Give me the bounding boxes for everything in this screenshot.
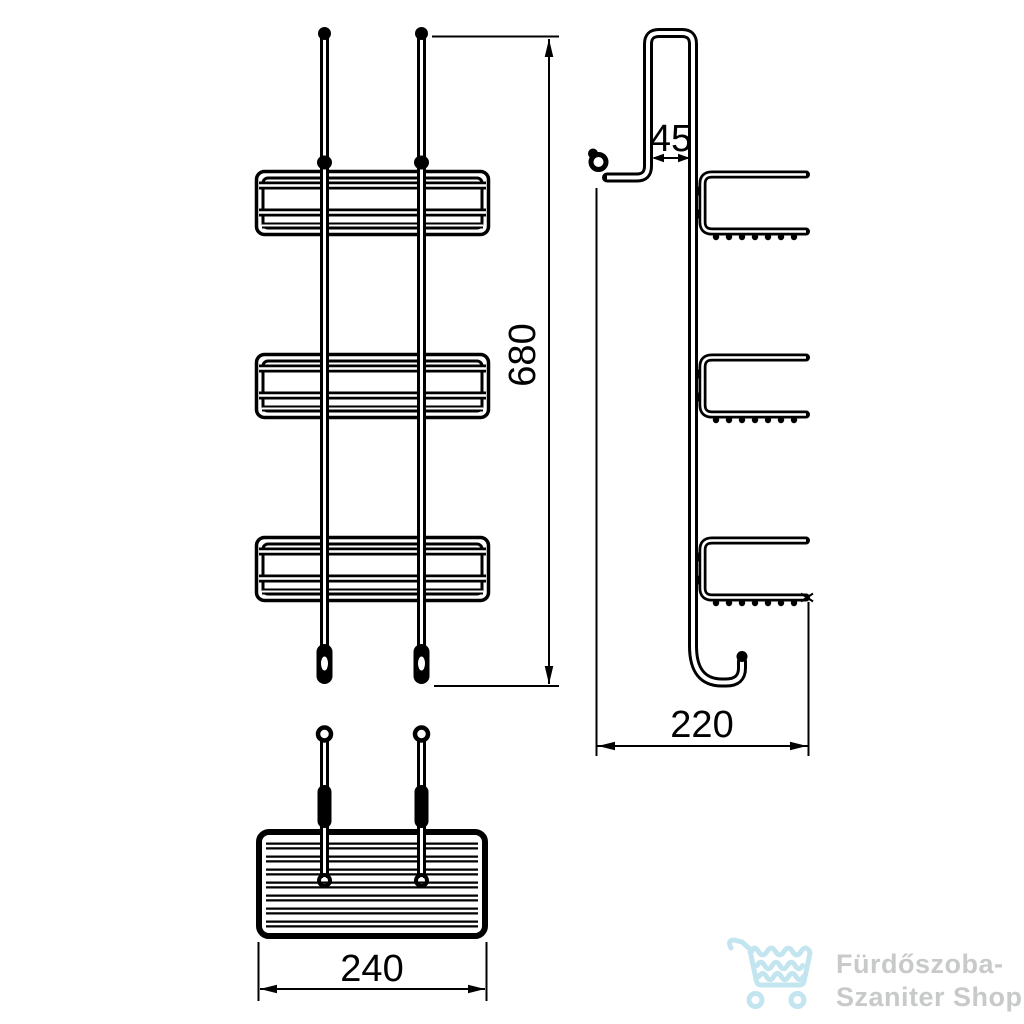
dimension-depth: 220	[597, 188, 814, 756]
rail-end-ball	[319, 875, 330, 886]
dimension-label-width: 240	[340, 948, 403, 990]
side-basket-3	[690, 541, 806, 607]
dimension-label-hook-gap: 45	[650, 118, 692, 160]
shower-caddy-dimension-drawing: 680 45 220	[0, 0, 1024, 1024]
rail-connector-ball	[317, 156, 332, 170]
top-basket	[259, 832, 485, 936]
front-basket-3	[257, 538, 489, 601]
front-view: 680	[257, 27, 560, 686]
cart-icon	[730, 940, 810, 1007]
dimension-label-depth: 220	[670, 704, 733, 746]
technical-drawing-page: 680 45 220	[0, 0, 1024, 1024]
top-view: 240	[259, 728, 487, 1002]
rail-top-ball	[415, 27, 428, 40]
dimension-width: 240	[259, 942, 487, 1001]
dimension-label-height: 680	[502, 323, 544, 386]
front-basket-2	[257, 355, 489, 418]
dimension-hook-gap: 45	[650, 118, 692, 162]
side-basket-2	[690, 358, 806, 424]
rail-end-ball	[416, 875, 427, 886]
logo-text-line1: Fürdőszoba-	[836, 949, 1004, 979]
rail-top-ring	[318, 728, 331, 741]
bottom-hook-ball	[737, 651, 748, 662]
door-hook-ball	[588, 149, 598, 159]
cart-wheel-right	[791, 994, 804, 1007]
front-hook-left	[321, 652, 328, 676]
rail-connector-ball	[414, 156, 429, 170]
rail-top-ring	[415, 728, 428, 741]
side-basket-1	[690, 175, 806, 241]
cart-wheel-left	[749, 994, 762, 1007]
front-hook-right	[418, 652, 425, 676]
front-basket-1	[257, 172, 489, 235]
logo-text-line2: Szaniter Shop	[836, 982, 1023, 1012]
rail-top-ball	[318, 27, 331, 40]
shop-logo: Fürdőszoba- Szaniter Shop	[730, 940, 1023, 1012]
side-view: 45 220	[588, 33, 813, 756]
